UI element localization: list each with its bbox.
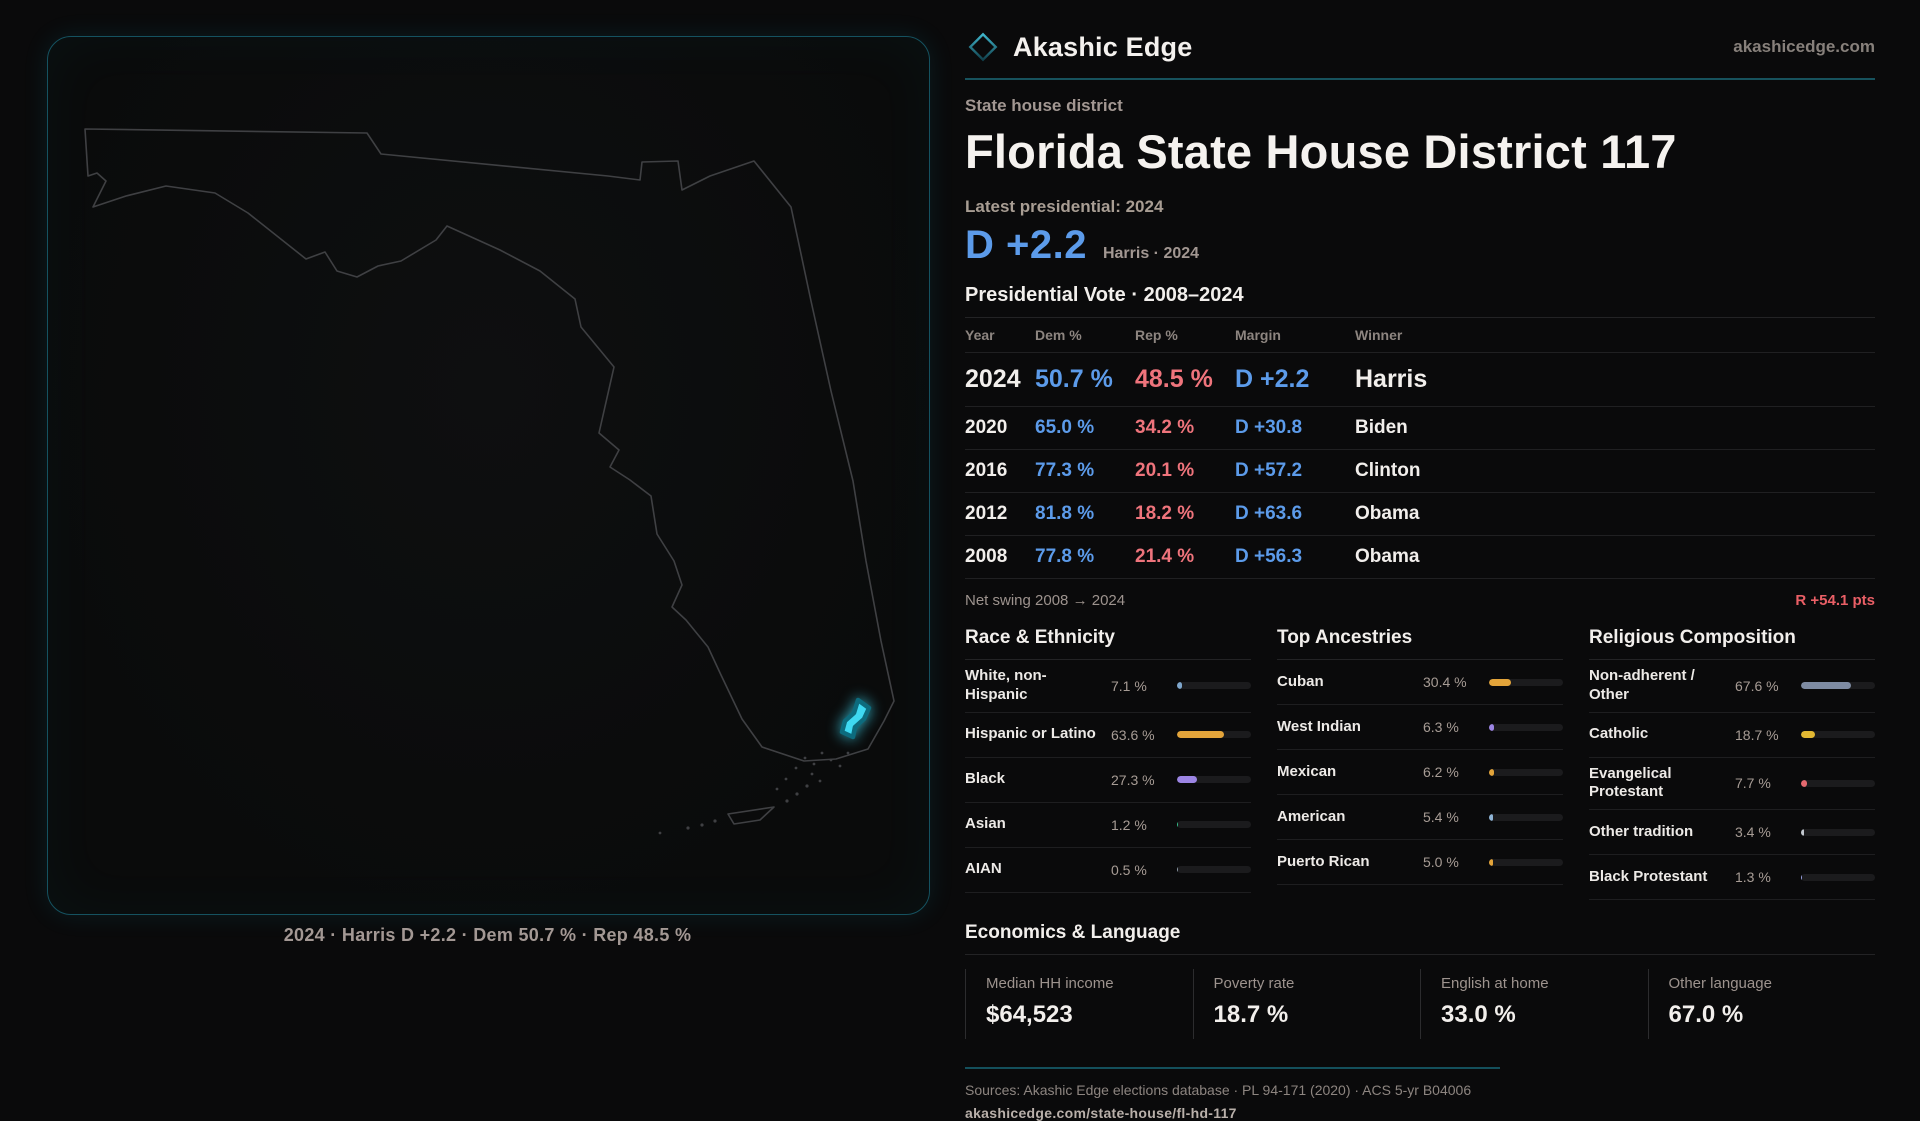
demo-value: 27.3 %: [1111, 772, 1169, 788]
demo-label: Asian: [965, 815, 1103, 834]
demo-value: 18.7 %: [1735, 727, 1793, 743]
economics-grid: Median HH income $64,523 Poverty rate 18…: [965, 969, 1875, 1039]
cell-dem: 65.0 %: [1035, 417, 1135, 439]
demo-row: Catholic 18.7 %: [1589, 713, 1875, 758]
demo-value: 6.3 %: [1423, 719, 1481, 735]
demo-label: Other tradition: [1589, 823, 1727, 842]
cell-margin: D +56.3: [1235, 546, 1355, 568]
cell-winner: Obama: [1355, 503, 1875, 525]
demo-row: Puerto Rican 5.0 %: [1277, 840, 1563, 885]
vote-table-body: 2024 50.7 % 48.5 % D +2.2 Harris 2020 65…: [965, 353, 1875, 579]
demo-value: 63.6 %: [1111, 727, 1169, 743]
demo-bar: [1177, 776, 1251, 783]
demo-value: 67.6 %: [1735, 678, 1793, 694]
demo-label: Evangelical Protestant: [1589, 765, 1727, 803]
florida-small-islands: [659, 752, 850, 835]
net-swing-value: R +54.1 pts: [1795, 592, 1875, 609]
cell-dem: 77.8 %: [1035, 546, 1135, 568]
cell-year: 2020: [965, 417, 1035, 439]
demo-bar: [1801, 682, 1875, 689]
demo-value: 5.4 %: [1423, 809, 1481, 825]
demo-label: Mexican: [1277, 763, 1415, 782]
demo-row: Cuban 30.4 %: [1277, 660, 1563, 705]
demo-label: Cuban: [1277, 673, 1415, 692]
section-religion-title: Religious Composition: [1589, 627, 1875, 660]
demo-bar: [1801, 731, 1875, 738]
cell-winner: Obama: [1355, 546, 1875, 568]
demo-label: Hispanic or Latino: [965, 725, 1103, 744]
economics-title: Economics & Language: [965, 922, 1875, 955]
demo-bar: [1801, 780, 1875, 787]
demo-label: West Indian: [1277, 718, 1415, 737]
demo-bar: [1489, 724, 1563, 731]
demo-value: 3.4 %: [1735, 824, 1793, 840]
kicker: State house district: [965, 96, 1875, 116]
demo-bar: [1801, 829, 1875, 836]
economics-stat: Other language 67.0 %: [1648, 969, 1876, 1039]
cell-winner: Biden: [1355, 417, 1875, 439]
section-race-title: Race & Ethnicity: [965, 627, 1251, 660]
cell-dem: 81.8 %: [1035, 503, 1135, 525]
cell-winner: Clinton: [1355, 460, 1875, 482]
cell-margin: D +57.2: [1235, 460, 1355, 482]
district-117-highlight[interactable]: [842, 700, 869, 737]
demo-value: 5.0 %: [1423, 854, 1481, 870]
florida-map: [48, 37, 929, 914]
demo-row: Mexican 6.2 %: [1277, 750, 1563, 795]
demo-bar: [1489, 859, 1563, 866]
vote-table-row: 2008 77.8 % 21.4 % D +56.3 Obama: [965, 536, 1875, 579]
footer-divider: [965, 1067, 1500, 1069]
stat-label: Other language: [1669, 975, 1876, 992]
map-caption: 2024 · Harris D +2.2 · Dem 50.7 % · Rep …: [47, 925, 928, 946]
demo-bar: [1177, 866, 1251, 873]
demo-bar: [1801, 874, 1875, 881]
vote-table-row: 2024 50.7 % 48.5 % D +2.2 Harris: [965, 353, 1875, 407]
demo-value: 0.5 %: [1111, 862, 1169, 878]
demo-label: American: [1277, 808, 1415, 827]
section-race: Race & Ethnicity White, non-Hispanic 7.1…: [965, 627, 1251, 900]
cell-rep: 34.2 %: [1135, 417, 1235, 439]
col-winner: Winner: [1355, 327, 1875, 343]
demo-bar: [1489, 814, 1563, 821]
demo-row: Other tradition 3.4 %: [1589, 810, 1875, 855]
economics-stat: Median HH income $64,523: [965, 969, 1193, 1039]
net-swing-row: Net swing 2008 → 2024 R +54.1 pts: [965, 579, 1875, 609]
page-title: Florida State House District 117: [965, 124, 1875, 179]
brand-name: Akashic Edge: [1013, 32, 1192, 63]
stat-value: 67.0 %: [1669, 1001, 1876, 1029]
cell-margin: D +63.6: [1235, 503, 1355, 525]
cell-year: 2016: [965, 460, 1035, 482]
section-ancestries: Top Ancestries Cuban 30.4 % West Indian …: [1277, 627, 1563, 900]
cell-winner: Harris: [1355, 365, 1875, 394]
vote-table-header: Year Dem % Rep % Margin Winner: [965, 318, 1875, 353]
stat-value: $64,523: [986, 1001, 1193, 1029]
florida-map-panel: [47, 36, 930, 915]
stat-label: Median HH income: [986, 975, 1193, 992]
demo-row: Hispanic or Latino 63.6 %: [965, 713, 1251, 758]
stat-label: Poverty rate: [1214, 975, 1421, 992]
demo-row: Asian 1.2 %: [965, 803, 1251, 848]
col-year: Year: [965, 327, 1035, 343]
demo-bar: [1177, 821, 1251, 828]
demo-value: 1.3 %: [1735, 869, 1793, 885]
footer: Sources: Akashic Edge elections database…: [965, 1067, 1875, 1121]
demo-label: AIAN: [965, 860, 1103, 879]
demo-value: 1.2 %: [1111, 817, 1169, 833]
economics-stat: English at home 33.0 %: [1420, 969, 1648, 1039]
detail-panel: Akashic Edge akashicedge.com State house…: [965, 24, 1875, 1121]
brand-domain-link[interactable]: akashicedge.com: [1733, 37, 1875, 57]
cell-year: 2012: [965, 503, 1035, 525]
col-margin: Margin: [1235, 327, 1355, 343]
section-ancestries-title: Top Ancestries: [1277, 627, 1563, 660]
cell-year: 2008: [965, 546, 1035, 568]
demo-label: Catholic: [1589, 725, 1727, 744]
demo-value: 6.2 %: [1423, 764, 1481, 780]
section-ancestries-rows: Cuban 30.4 % West Indian 6.3 % Mexican 6…: [1277, 660, 1563, 885]
demo-row: Evangelical Protestant 7.7 %: [1589, 758, 1875, 811]
demo-label: Black: [965, 770, 1103, 789]
vote-table-row: 2020 65.0 % 34.2 % D +30.8 Biden: [965, 407, 1875, 450]
demographics-grid: Race & Ethnicity White, non-Hispanic 7.1…: [965, 627, 1875, 900]
cell-rep: 20.1 %: [1135, 460, 1235, 482]
cell-margin: D +2.2: [1235, 365, 1355, 394]
vote-table-row: 2012 81.8 % 18.2 % D +63.6 Obama: [965, 493, 1875, 536]
footer-sources: Sources: Akashic Edge elections database…: [965, 1082, 1875, 1098]
cell-rep: 18.2 %: [1135, 503, 1235, 525]
demo-value: 7.1 %: [1111, 678, 1169, 694]
stat-value: 18.7 %: [1214, 1001, 1421, 1029]
cell-year: 2024: [965, 365, 1035, 394]
demo-label: Black Protestant: [1589, 868, 1727, 887]
demo-row: AIAN 0.5 %: [965, 848, 1251, 893]
florida-keys-outline: [728, 807, 774, 824]
demo-label: Non-adherent / Other: [1589, 667, 1727, 705]
demo-bar: [1489, 769, 1563, 776]
demo-row: American 5.4 %: [1277, 795, 1563, 840]
stat-label: English at home: [1441, 975, 1648, 992]
demo-label: White, non-Hispanic: [965, 667, 1103, 705]
demo-value: 30.4 %: [1423, 674, 1481, 690]
section-race-rows: White, non-Hispanic 7.1 % Hispanic or La…: [965, 660, 1251, 893]
headline-context: Harris · 2024: [1103, 245, 1199, 263]
net-swing-label: Net swing 2008 → 2024: [965, 592, 1125, 609]
demo-value: 7.7 %: [1735, 775, 1793, 791]
vote-table-row: 2016 77.3 % 20.1 % D +57.2 Clinton: [965, 450, 1875, 493]
section-religion-rows: Non-adherent / Other 67.6 % Catholic 18.…: [1589, 660, 1875, 900]
headline-margin-value: D +2.2: [965, 223, 1087, 268]
demo-row: Non-adherent / Other 67.6 %: [1589, 660, 1875, 713]
florida-outline: [85, 129, 894, 761]
economics-stat: Poverty rate 18.7 %: [1193, 969, 1421, 1039]
stat-value: 33.0 %: [1441, 1001, 1648, 1029]
cell-dem: 77.3 %: [1035, 460, 1135, 482]
section-religion: Religious Composition Non-adherent / Oth…: [1589, 627, 1875, 900]
demo-label: Puerto Rican: [1277, 853, 1415, 872]
demo-row: White, non-Hispanic 7.1 %: [965, 660, 1251, 713]
col-rep: Rep %: [1135, 327, 1235, 343]
demo-row: Black 27.3 %: [965, 758, 1251, 803]
demo-bar: [1177, 682, 1251, 689]
headline-margin-block: D +2.2 Harris · 2024: [965, 223, 1875, 268]
header: Akashic Edge akashicedge.com: [965, 24, 1875, 80]
demo-row: West Indian 6.3 %: [1277, 705, 1563, 750]
latest-presidential-label: Latest presidential: 2024: [965, 197, 1875, 217]
cell-rep: 48.5 %: [1135, 365, 1235, 394]
footer-permalink-link[interactable]: akashicedge.com/state-house/fl-hd-117: [965, 1105, 1875, 1121]
cell-dem: 50.7 %: [1035, 365, 1135, 394]
demo-bar: [1177, 731, 1251, 738]
cell-rep: 21.4 %: [1135, 546, 1235, 568]
col-dem: Dem %: [1035, 327, 1135, 343]
demo-row: Black Protestant 1.3 %: [1589, 855, 1875, 900]
demo-bar: [1489, 679, 1563, 686]
vote-table-title: Presidential Vote · 2008–2024: [965, 284, 1875, 318]
cell-margin: D +30.8: [1235, 417, 1355, 439]
diamond-logo-icon: [965, 29, 1001, 65]
